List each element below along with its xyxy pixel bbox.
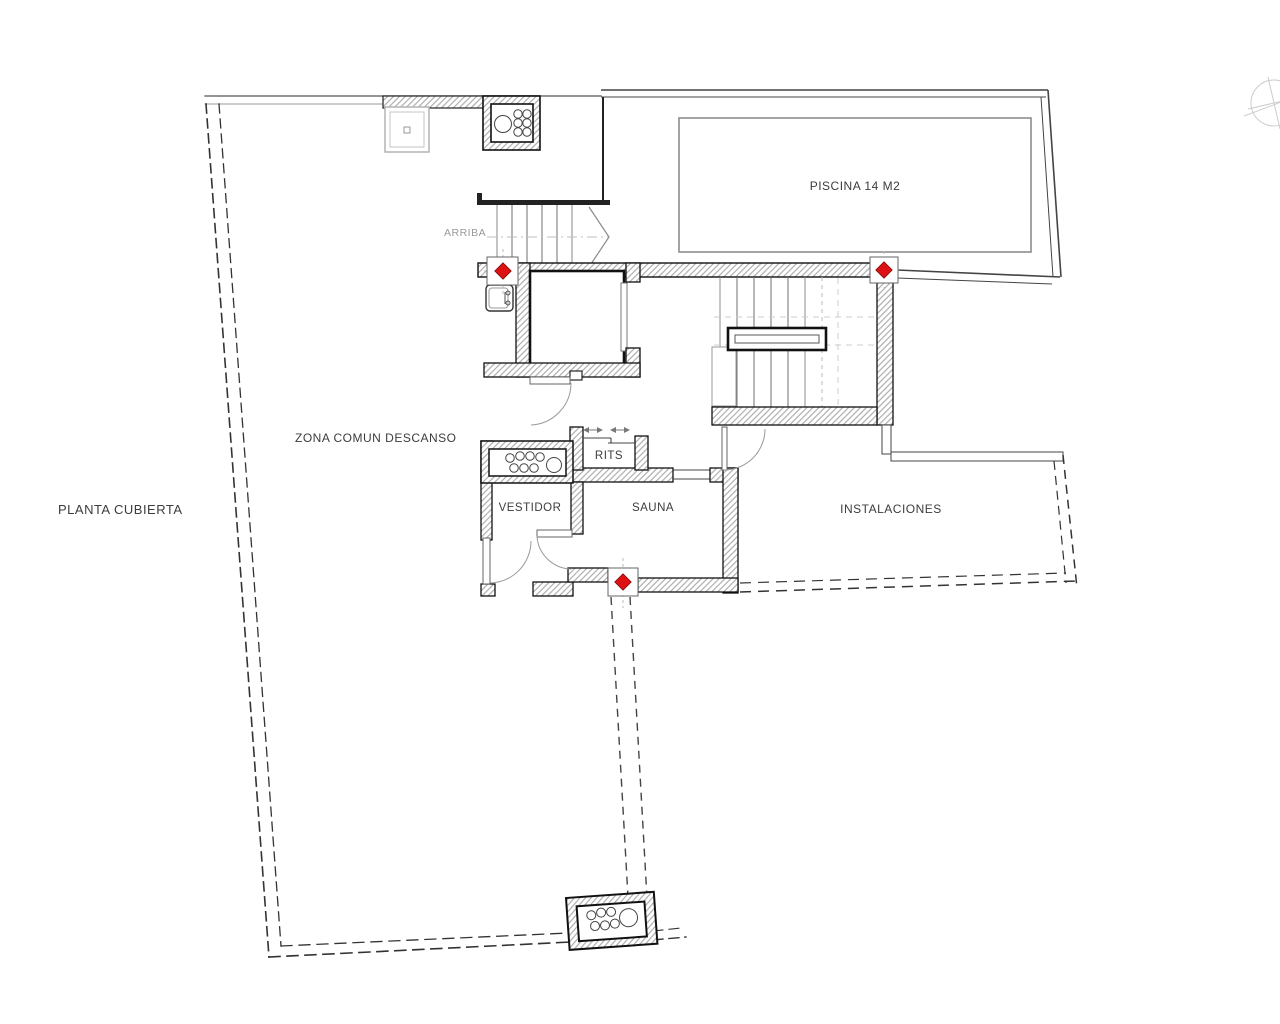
floor-plan-page: PLANTA CUBIERTA ZONA COMUN DESCANSO PISC… xyxy=(0,0,1280,1024)
skylight-icon xyxy=(385,107,429,152)
door-direction-arrows-icon xyxy=(583,427,630,433)
shower-bench-icon xyxy=(481,441,573,483)
room-label-instalaciones: INSTALACIONES xyxy=(801,502,981,516)
top-planter-icon xyxy=(483,96,540,150)
room-label-sauna: SAUNA xyxy=(583,502,723,514)
terrace-boundary xyxy=(205,96,686,957)
stairs-up-label: ARRIBA xyxy=(444,227,486,239)
room-label-zona-comun: ZONA COMUN DESCANSO xyxy=(295,431,457,445)
walkway-path xyxy=(611,597,647,898)
bottom-planter-icon xyxy=(566,892,657,950)
stairs-main xyxy=(712,277,893,425)
stairs-upper xyxy=(477,193,610,267)
room-label-rits: RITS xyxy=(581,450,637,462)
survey-marker-3 xyxy=(608,558,638,608)
room-label-piscina: PISCINA 14 M2 xyxy=(679,179,1031,193)
room-label-vestidor: VESTIDOR xyxy=(488,502,572,514)
north-arrow-icon xyxy=(1244,77,1280,129)
sink-icon xyxy=(486,285,513,311)
floor-title-label: PLANTA CUBIERTA xyxy=(58,502,183,517)
